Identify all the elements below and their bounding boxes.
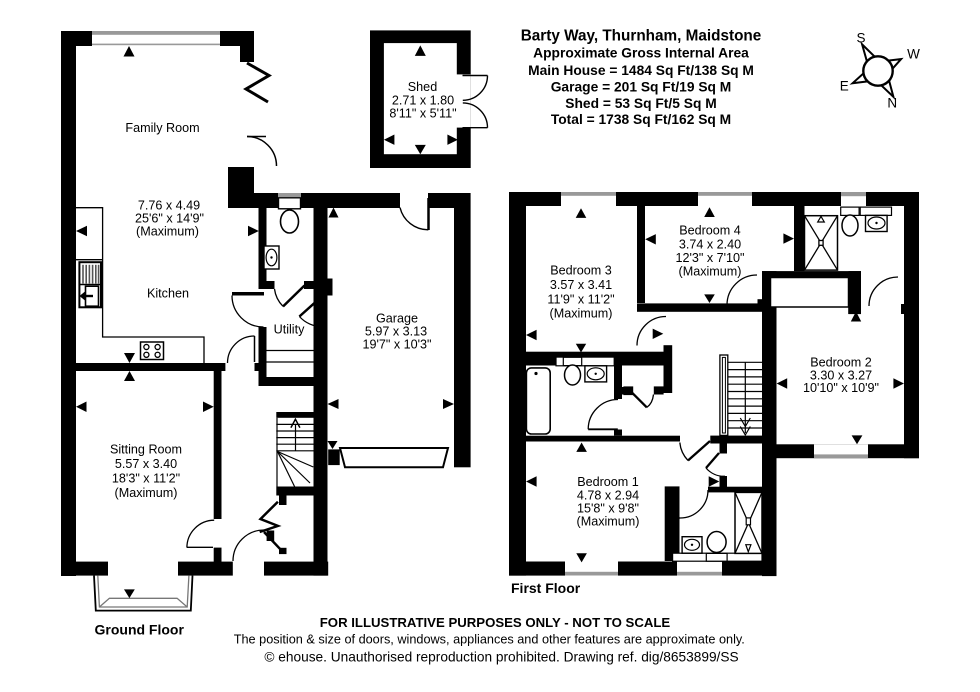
svg-text:Shed = 53 Sq Ft/5 Sq M: Shed = 53 Sq Ft/5 Sq M [565,96,716,111]
svg-text:Family Room: Family Room [125,121,199,135]
svg-text:© ehouse. Unauthorised reprodu: © ehouse. Unauthorised reproduction proh… [264,650,738,665]
svg-text:The position & size of doors,: The position & size of doors, windows, a… [234,633,745,647]
svg-text:(Maximum): (Maximum) [136,225,199,239]
svg-text:19'7" x 10'3": 19'7" x 10'3" [362,338,431,352]
svg-text:S: S [856,31,865,46]
svg-text:(Maximum): (Maximum) [679,265,742,279]
svg-text:N: N [887,96,897,111]
svg-text:Garage: Garage [376,312,418,326]
svg-text:FOR ILLUSTRATIVE PURPOSES ONLY: FOR ILLUSTRATIVE PURPOSES ONLY - NOT TO … [320,615,671,630]
svg-text:10'10" x 10'9": 10'10" x 10'9" [803,381,879,395]
svg-text:Total = 1738 Sq Ft/162 Sq M: Total = 1738 Sq Ft/162 Sq M [551,112,731,127]
svg-text:12'3" x 7'10": 12'3" x 7'10" [675,251,744,265]
svg-text:4.78 x 2.94: 4.78 x 2.94 [577,489,639,503]
svg-text:Bedroom 2: Bedroom 2 [810,356,872,370]
svg-text:7.76 x 4.49: 7.76 x 4.49 [138,199,200,213]
svg-text:8'11" x 5'11": 8'11" x 5'11" [389,107,456,121]
svg-text:Main House = 1484 Sq Ft/138 Sq: Main House = 1484 Sq Ft/138 Sq M [528,63,754,78]
svg-text:W: W [907,46,920,61]
svg-text:Sitting Room: Sitting Room [110,443,182,457]
svg-text:E: E [840,78,849,93]
svg-text:(Maximum): (Maximum) [550,307,613,321]
svg-text:(Maximum): (Maximum) [115,486,178,500]
svg-text:11'9" x 11'2": 11'9" x 11'2" [547,293,614,307]
svg-text:3.74 x 2.40: 3.74 x 2.40 [679,238,741,252]
svg-text:15'8" x 9'8": 15'8" x 9'8" [577,502,639,516]
svg-text:Bedroom 4: Bedroom 4 [679,224,741,238]
svg-text:Bedroom 3: Bedroom 3 [550,264,612,278]
svg-text:18'3" x 11'2": 18'3" x 11'2" [112,472,180,486]
svg-text:Kitchen: Kitchen [147,287,189,301]
svg-text:5.57 x 3.40: 5.57 x 3.40 [115,457,177,471]
svg-text:Ground Floor: Ground Floor [95,622,185,638]
svg-text:Shed: Shed [408,80,437,94]
svg-text:Approximate Gross Internal Are: Approximate Gross Internal Area [533,46,749,61]
svg-text:First Floor: First Floor [511,580,581,596]
svg-text:Barty Way, Thurnham, Maidstone: Barty Way, Thurnham, Maidstone [521,28,762,45]
svg-text:Garage = 201 Sq Ft/19 Sq M: Garage = 201 Sq Ft/19 Sq M [551,79,732,94]
svg-text:Bedroom 1: Bedroom 1 [577,475,639,489]
svg-text:(Maximum): (Maximum) [577,515,640,529]
svg-text:3.57 x 3.41: 3.57 x 3.41 [550,278,612,292]
svg-text:2.71 x 1.80: 2.71 x 1.80 [392,94,454,108]
svg-text:Utility: Utility [274,323,305,337]
svg-text:5.97 x 3.13: 5.97 x 3.13 [365,325,427,339]
